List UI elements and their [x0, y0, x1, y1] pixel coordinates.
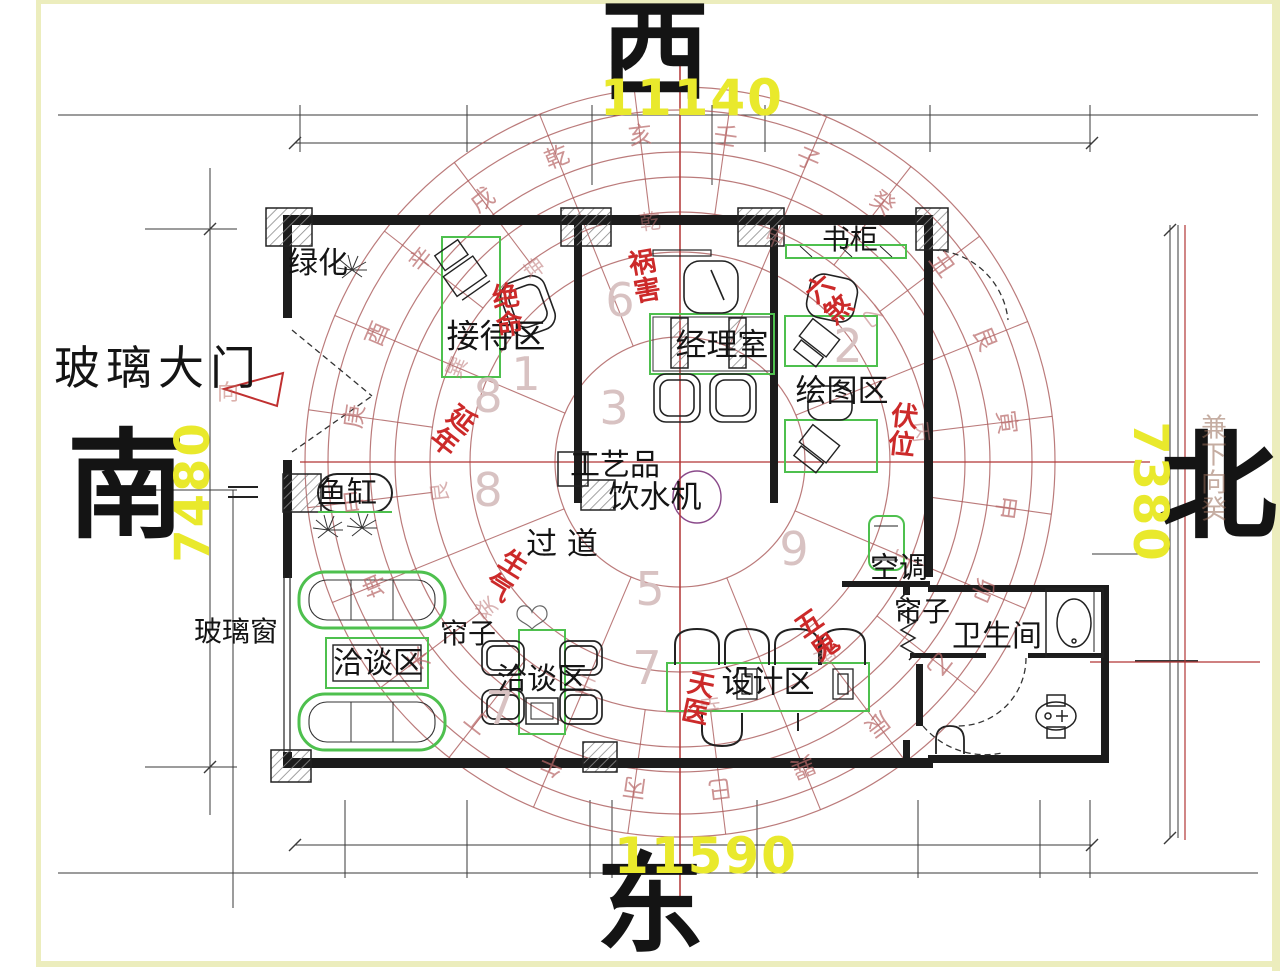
- facing-direction-arrow: [224, 373, 283, 406]
- compass-radial: [634, 90, 649, 214]
- glass-window-lines: [228, 487, 290, 755]
- compass-radial: [450, 364, 565, 413]
- design-chairs: [675, 629, 865, 746]
- compass-radial: [796, 368, 912, 415]
- compass-radial: [710, 710, 725, 834]
- compass-radial: [448, 509, 564, 556]
- bathroom-fixtures: [936, 589, 1103, 754]
- compass-radial: [715, 91, 732, 215]
- compass-radial: [586, 230, 633, 346]
- compass-radial: [628, 710, 645, 834]
- dimension-lines: [58, 105, 1258, 908]
- compass-radial: [309, 410, 433, 427]
- compass-radial: [795, 511, 910, 560]
- floor-plan-drawing: [0, 0, 1280, 971]
- compass-radial: [928, 416, 1052, 431]
- plant-icon: [313, 255, 377, 538]
- cad-floorplan-page: 西 东 南 北 11140 11590 7480 7380 绿化 接待区 经理室…: [0, 0, 1280, 971]
- curtain-zigzag: [901, 590, 915, 660]
- compass-axis: [300, 58, 1260, 905]
- compass-radial: [308, 492, 432, 507]
- compass-radial: [332, 556, 448, 603]
- wall-piers: [266, 208, 948, 782]
- compass-radial: [778, 117, 827, 232]
- walls: [283, 215, 1109, 768]
- page-border: [36, 0, 1280, 971]
- compass-radial: [928, 497, 1052, 514]
- compass-radial: [335, 315, 450, 364]
